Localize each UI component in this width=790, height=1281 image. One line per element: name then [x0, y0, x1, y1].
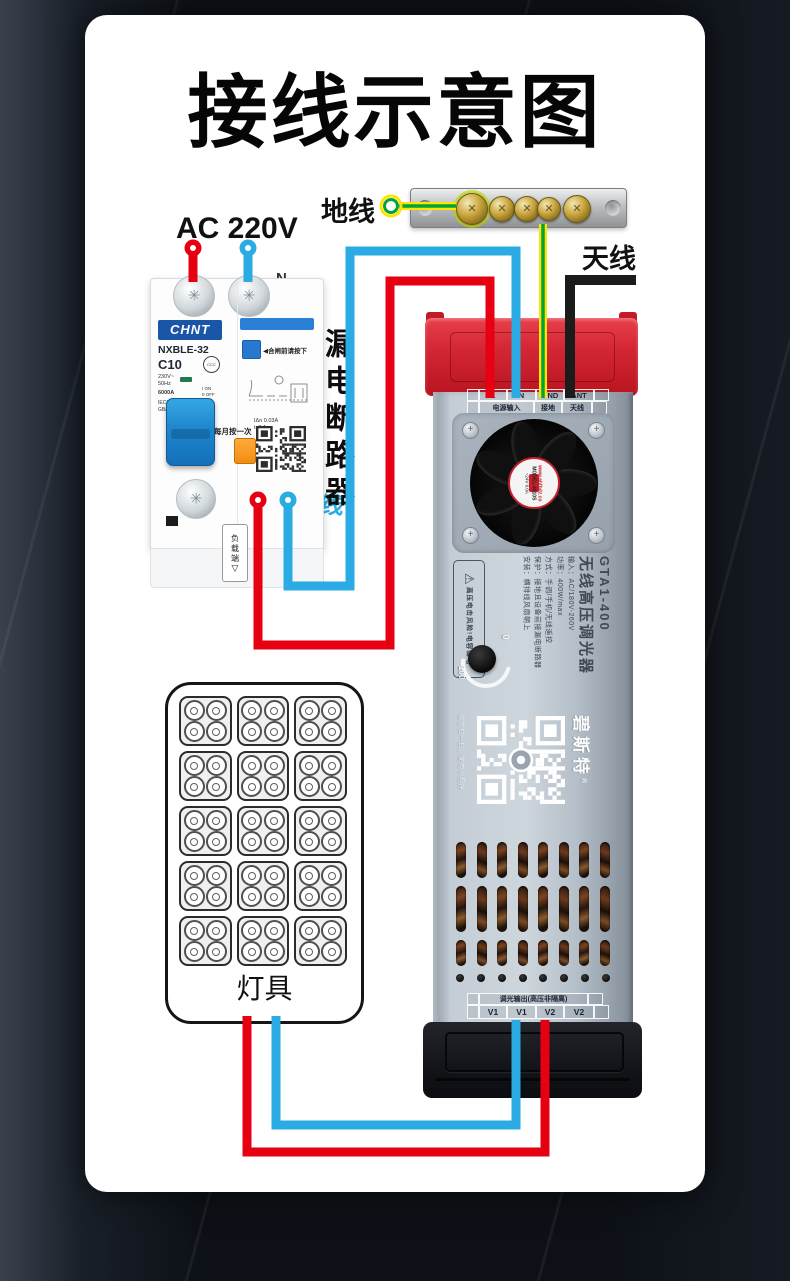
qr-module — [552, 750, 556, 754]
breaker-leakage-current: IΔn 0.03A — [254, 418, 278, 424]
qr-module — [299, 468, 301, 470]
load-side-arrow-icon: ▽ — [232, 564, 239, 573]
knob-min-label: 0 — [501, 634, 511, 639]
qr-module — [299, 444, 301, 446]
lamp-led — [264, 920, 285, 941]
qr-module — [540, 762, 544, 766]
qr-module — [263, 448, 265, 450]
lamp-led — [206, 941, 227, 962]
lamp-led — [184, 831, 205, 852]
qr-module — [292, 468, 294, 470]
lamp-led — [241, 865, 262, 886]
lamp-module — [237, 751, 290, 801]
qr-module — [511, 787, 515, 791]
qr-module — [304, 470, 306, 472]
device-model: GTA1-400 — [597, 556, 612, 730]
qr-module — [292, 452, 294, 454]
qr-module — [557, 758, 561, 762]
breaker-toggle-handle[interactable] — [166, 398, 215, 466]
dimming-knob[interactable] — [468, 645, 496, 673]
qr-module — [527, 737, 531, 741]
qr-module — [287, 463, 289, 465]
qr-module — [275, 461, 277, 463]
qr-module — [299, 470, 301, 472]
qr-module — [498, 762, 502, 766]
output-title-blank — [467, 993, 479, 1005]
qr-module — [552, 762, 556, 766]
lamp-led — [264, 776, 285, 797]
vent-hole — [519, 974, 527, 982]
dimming-knob-group: 0 100 — [455, 628, 515, 694]
qr-module — [552, 796, 556, 800]
lamp-led — [184, 776, 205, 797]
lamp-led — [264, 886, 285, 907]
qr-module — [282, 465, 284, 467]
qr-module — [552, 766, 556, 770]
qr-module — [280, 448, 282, 450]
qr-module — [527, 787, 531, 791]
vent-slot — [600, 842, 610, 878]
lamp-led — [299, 920, 320, 941]
qr-module — [540, 754, 544, 758]
qr-module — [561, 766, 565, 770]
vent-slot — [497, 842, 507, 878]
qr-module — [511, 791, 515, 795]
qr-module — [536, 758, 540, 762]
lamp-led — [206, 920, 227, 941]
qr-module — [481, 754, 485, 758]
output-terminal-v1: V1 — [507, 1005, 536, 1019]
lamp-led — [299, 865, 320, 886]
qr-module — [292, 470, 294, 472]
device-spec-line: 功率：400W/max — [554, 556, 565, 732]
output-title-调光输出(高压非隔离): 调光输出(高压非隔离) — [479, 993, 588, 1005]
qr-module — [301, 470, 303, 472]
qr-module — [294, 452, 296, 454]
lamp-led — [206, 810, 227, 831]
qr-module — [519, 791, 523, 795]
vent-hole — [498, 974, 506, 982]
qr-module — [285, 448, 287, 450]
vent-hole — [477, 974, 485, 982]
vent-slot — [456, 886, 466, 932]
breaker-status-window — [180, 377, 192, 382]
qr-module — [275, 459, 277, 461]
qr-module — [531, 791, 535, 795]
qr-module — [296, 448, 298, 450]
qr-module — [299, 459, 301, 461]
lamp-led — [264, 941, 285, 962]
qr-module — [299, 463, 301, 465]
output-terminal-strip: 调光输出(高压非隔离) V1V1V2V2 — [467, 993, 609, 1019]
qr-module — [548, 791, 552, 795]
lamp-led — [206, 886, 227, 907]
qr-module — [304, 446, 306, 448]
qr-finder-core — [261, 461, 268, 468]
qr-module — [280, 439, 282, 441]
qr-module — [511, 724, 515, 728]
vent-hole — [560, 974, 568, 982]
lamp-led — [264, 755, 285, 776]
vent-slot — [600, 886, 610, 932]
qr-module — [511, 783, 515, 787]
qr-module — [258, 448, 260, 450]
lamp-module — [179, 696, 232, 746]
lamp-led — [206, 755, 227, 776]
qr-module — [498, 754, 502, 758]
qr-module — [289, 452, 291, 454]
device-spec-line: 安装：横排线风扇朝上 — [520, 556, 531, 732]
qr-module — [301, 461, 303, 463]
lamp-led — [241, 721, 262, 742]
vent-slot — [538, 886, 548, 932]
qr-finder-core — [544, 724, 557, 737]
qr-module — [531, 770, 535, 774]
vent-slot — [518, 842, 528, 878]
lamp-led — [184, 755, 205, 776]
qr-module — [548, 800, 552, 804]
qr-center-dot — [517, 756, 525, 764]
qr-module — [557, 783, 561, 787]
qr-module — [282, 428, 284, 430]
lamp-led — [206, 721, 227, 742]
lamp-module — [179, 916, 232, 966]
qr-module — [519, 724, 523, 728]
qr-module — [299, 452, 301, 454]
qr-finder-core — [294, 430, 301, 437]
qr-module — [531, 750, 535, 754]
device-specs: 输入：AC/180V-260V功率：400W/max方式：手调/手机/无线遥控保… — [520, 556, 576, 732]
end-cap-seam — [435, 1078, 630, 1081]
breaker-off-mark: 0 OFF — [202, 392, 215, 397]
qr-module — [523, 724, 527, 728]
qr-module — [304, 461, 306, 463]
breaker-bottom-terminal-l — [176, 479, 216, 519]
device-red-cap — [425, 318, 638, 396]
qr-module — [304, 459, 306, 461]
qr-module — [301, 452, 303, 454]
vent-slot — [477, 886, 487, 932]
lamp-led — [184, 721, 205, 742]
qr-module — [292, 450, 294, 452]
wiring-diagram-page: 接线示意图 AC 220V 地线 天线 火线 零线 漏电断路器 N N → CH… — [0, 0, 790, 1281]
qr-module — [540, 750, 544, 754]
lamp-led — [299, 831, 320, 852]
qr-module — [536, 750, 540, 754]
qr-module — [527, 775, 531, 779]
qr-module — [275, 463, 277, 465]
vent-slot — [538, 940, 548, 966]
lamp-led — [206, 776, 227, 797]
breaker-brand-logo: CHNT — [158, 320, 222, 340]
breaker-top-terminal-n — [228, 275, 270, 317]
qr-module — [544, 775, 548, 779]
lamp-led — [206, 831, 227, 852]
qr-module — [301, 444, 303, 446]
registered-mark: ® — [580, 778, 587, 787]
vent-slot — [579, 886, 589, 932]
breaker-rating: C10 — [158, 357, 182, 372]
lamp-led — [321, 831, 342, 852]
vent-slot — [600, 940, 610, 966]
breaker-voltage: 230V~ — [158, 374, 174, 380]
qr-module — [485, 762, 489, 766]
qr-module — [544, 766, 548, 770]
qr-module — [544, 800, 548, 804]
qr-module — [548, 787, 552, 791]
load-side-tag: 负载端 ▽ — [222, 524, 248, 582]
ground-bus-bar — [410, 188, 627, 228]
qr-module — [285, 452, 287, 454]
qr-module — [548, 750, 552, 754]
qr-module — [304, 444, 306, 446]
breaker-model: NXBLE-32 — [158, 344, 209, 356]
input-terminal-blank — [467, 389, 479, 401]
qr-module — [292, 465, 294, 467]
qr-module — [519, 775, 523, 779]
ground-screw — [537, 197, 561, 221]
vent-slot — [477, 940, 487, 966]
qr-module — [270, 448, 272, 450]
qr-module — [285, 457, 287, 459]
qr-module — [282, 437, 284, 439]
breaker-monthly-note: 每月按一次 — [214, 426, 252, 437]
qr-module — [275, 454, 277, 456]
qr-module — [523, 796, 527, 800]
lamp-module — [179, 751, 232, 801]
circuit-breaker: CHNT NXBLE-32 C10 CCC 230V~ 50Hz 6000A I… — [150, 268, 322, 586]
qr-module — [287, 444, 289, 446]
output-terminal-blank — [467, 1005, 479, 1019]
qr-module — [294, 470, 296, 472]
lamp-led — [321, 810, 342, 831]
device-spec-line: 输入：AC/180V-260V — [565, 556, 576, 732]
vent-slot — [497, 886, 507, 932]
lamp-led — [264, 721, 285, 742]
input-terminal-ant: ANT — [564, 389, 594, 401]
qr-module — [296, 463, 298, 465]
qr-module — [557, 766, 561, 770]
breaker-test-button[interactable] — [242, 340, 261, 359]
qr-module — [280, 457, 282, 459]
qr-module — [299, 457, 301, 459]
breaker-press-note: ◀合闸前请按下 — [263, 345, 307, 355]
lamp-led — [184, 810, 205, 831]
vent-slot-row — [456, 842, 610, 878]
breaker-reset-button[interactable] — [234, 438, 256, 464]
lamp-panel: 灯具 — [165, 682, 364, 1024]
lamp-led — [321, 865, 342, 886]
qr-module — [282, 459, 284, 461]
qr-module — [280, 446, 282, 448]
lamp-led — [241, 920, 262, 941]
qr-module — [280, 465, 282, 467]
lamp-panel-label: 灯具 — [168, 967, 361, 1007]
breaker-blue-strip — [240, 318, 314, 330]
lamp-led — [264, 700, 285, 721]
breaker-pole-divider — [237, 282, 238, 540]
qr-module — [544, 750, 548, 754]
qr-module — [261, 450, 263, 452]
fan-sticker: www.ahfbdz.co MODEL-4010S ~24V 0.0A — [508, 457, 560, 509]
qr-module — [523, 737, 527, 741]
lamp-led — [299, 700, 320, 721]
lamp-module — [237, 696, 290, 746]
lamp-led — [299, 776, 320, 797]
qr-module — [481, 762, 485, 766]
qr-module — [540, 758, 544, 762]
qr-module — [299, 454, 301, 456]
bar-end-hole — [417, 200, 433, 216]
qr-module — [285, 468, 287, 470]
qr-module — [289, 450, 291, 452]
lamp-led — [184, 865, 205, 886]
qr-scan-hint: 微信扫一扫，使用小程序 — [457, 714, 466, 791]
ground-screw — [456, 193, 488, 225]
qr-module — [294, 457, 296, 459]
ground-wire-label: 地线 — [321, 190, 375, 229]
vent-hole — [456, 974, 464, 982]
breaker-top-terminal-l — [173, 275, 215, 317]
lamp-led — [321, 920, 342, 941]
qr-module — [296, 452, 298, 454]
vent-slot — [477, 842, 487, 878]
lamp-led — [241, 941, 262, 962]
device-end-cap — [423, 1022, 642, 1098]
fan-screw-bl: + — [462, 527, 479, 544]
input-terminal-gnd: GND — [536, 389, 564, 401]
qr-module — [502, 754, 506, 758]
qr-module — [292, 444, 294, 446]
vent-slot — [518, 940, 528, 966]
qr-module — [519, 741, 523, 745]
qr-module — [304, 452, 306, 454]
qr-module — [527, 741, 531, 745]
qr-module — [285, 454, 287, 456]
qr-module — [296, 444, 298, 446]
qr-module — [275, 465, 277, 467]
qr-module — [285, 463, 287, 465]
qr-module — [519, 720, 523, 724]
input-terminal-n: N — [507, 389, 536, 401]
lamp-led — [184, 886, 205, 907]
fan-sticker-model: MODEL-4010S — [530, 465, 536, 501]
qr-module — [285, 439, 287, 441]
qr-module — [511, 733, 515, 737]
output-terminal-v2: V2 — [536, 1005, 564, 1019]
breaker-din-clip — [166, 516, 178, 526]
lamp-led — [241, 886, 262, 907]
qr-module — [301, 465, 303, 467]
lamp-led — [321, 721, 342, 742]
lamp-grid — [179, 696, 347, 964]
qr-module — [287, 452, 289, 454]
qr-module — [523, 791, 527, 795]
qr-module — [289, 448, 291, 450]
qr-module — [256, 444, 258, 446]
ground-screw — [563, 195, 591, 223]
output-terminal-v1: V1 — [479, 1005, 507, 1019]
qr-module — [540, 791, 544, 795]
brand-name: 碧斯特® — [570, 715, 595, 787]
lamp-led — [241, 831, 262, 852]
vent-slot — [559, 940, 569, 966]
lamp-led — [299, 721, 320, 742]
qr-module — [268, 450, 270, 452]
lamp-led — [241, 810, 262, 831]
ground-screw — [489, 196, 515, 222]
end-cap-recess — [445, 1032, 624, 1072]
fan-screw-br: + — [588, 527, 605, 544]
dimmer-device: LNGNDANT 电源输入接地天线 www.ahfbdz.co MODEL-40… — [420, 310, 645, 1102]
qr-module — [527, 796, 531, 800]
qr-module — [557, 750, 561, 754]
lamp-module — [294, 696, 347, 746]
input-terminal-blank — [594, 389, 609, 401]
lamp-led — [206, 700, 227, 721]
qr-module — [280, 441, 282, 443]
lamp-led — [264, 865, 285, 886]
lamp-led — [206, 865, 227, 886]
qr-module — [548, 758, 552, 762]
qr-module — [477, 754, 481, 758]
qr-module — [557, 791, 561, 795]
lamp-module — [294, 806, 347, 856]
lamp-module — [237, 806, 290, 856]
vent-grille — [452, 842, 614, 990]
lamp-led — [241, 755, 262, 776]
fan-screw-tr: + — [588, 422, 605, 439]
qr-module — [519, 779, 523, 783]
cooling-fan: www.ahfbdz.co MODEL-4010S ~24V 0.0A + + … — [452, 413, 615, 553]
lamp-led — [321, 776, 342, 797]
qr-module — [548, 770, 552, 774]
lamp-module — [294, 751, 347, 801]
vent-slot — [579, 842, 589, 878]
qr-module — [270, 446, 272, 448]
qr-module — [540, 796, 544, 800]
antenna-label: 天线 — [582, 237, 636, 276]
lamp-led — [299, 886, 320, 907]
qr-module — [540, 800, 544, 804]
vent-slot-row — [456, 940, 610, 966]
lamp-led — [299, 941, 320, 962]
vent-hole — [581, 974, 589, 982]
breaker-qr-code — [256, 426, 306, 472]
breaker-breaking-capacity: 6000A — [158, 390, 174, 396]
qr-module — [557, 775, 561, 779]
qr-module — [289, 459, 291, 461]
qr-module — [552, 787, 556, 791]
qr-module — [536, 779, 540, 783]
qr-module — [282, 452, 284, 454]
qr-module — [289, 444, 291, 446]
qr-module — [519, 729, 523, 733]
output-terminal-blank — [594, 1005, 609, 1019]
qr-module — [256, 446, 258, 448]
qr-module — [275, 435, 277, 437]
qr-module — [477, 766, 481, 770]
qr-module — [287, 465, 289, 467]
page-title: 接线示意图 — [85, 48, 705, 164]
bar-end-hole — [605, 200, 621, 216]
qr-module — [289, 468, 291, 470]
lamp-led — [184, 920, 205, 941]
qr-module — [523, 779, 527, 783]
lamp-module — [179, 861, 232, 911]
qr-module — [552, 800, 556, 804]
qr-module — [544, 754, 548, 758]
